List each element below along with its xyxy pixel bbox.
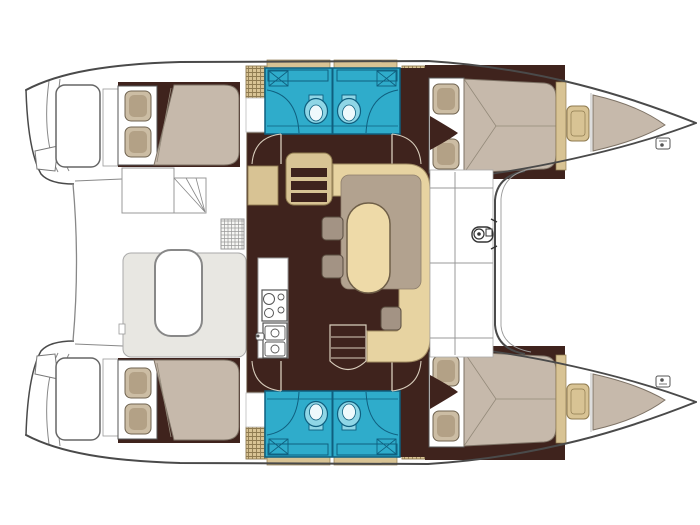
berth-shelf [556, 82, 566, 170]
pillow [125, 127, 151, 157]
steps-to-starboard-hull [330, 325, 366, 370]
cockpit-steps [174, 178, 206, 213]
pillow [125, 91, 151, 121]
aft-platform-edge [73, 184, 77, 341]
trampoline-edge [495, 171, 525, 354]
catamaran-floor-plan [0, 0, 700, 525]
dinette-table [347, 203, 390, 293]
toilet [338, 99, 361, 124]
galley-upper-counter [248, 166, 278, 205]
stern-platform [26, 79, 118, 184]
stool [322, 217, 343, 240]
transom-step [35, 146, 58, 171]
stove [262, 290, 287, 321]
forepeak [567, 93, 670, 152]
pillow [433, 84, 459, 114]
bench-latch [119, 324, 125, 334]
catamaran-floor-plan-canvas [0, 0, 700, 525]
hull-corridor [398, 68, 429, 134]
stern-seat [56, 85, 100, 167]
deck-grate [221, 219, 244, 249]
galley [256, 258, 288, 358]
toilet [305, 99, 328, 124]
stool [322, 255, 343, 278]
door-recess [246, 98, 265, 132]
louvered-wardrobe [246, 66, 266, 98]
forward-window-seats [430, 170, 493, 357]
cockpit [73, 168, 246, 357]
aft-cabin [118, 82, 240, 167]
cockpit-table [155, 250, 202, 336]
windlass [472, 227, 493, 242]
bathroom [265, 68, 400, 134]
bow-cleat [656, 138, 670, 149]
stool [381, 307, 401, 330]
forward-cabin [425, 65, 566, 179]
steps-to-port-hull [286, 153, 332, 205]
cockpit-locker [122, 168, 174, 213]
stern-side-panel [103, 89, 118, 166]
bow-pad [593, 95, 665, 151]
